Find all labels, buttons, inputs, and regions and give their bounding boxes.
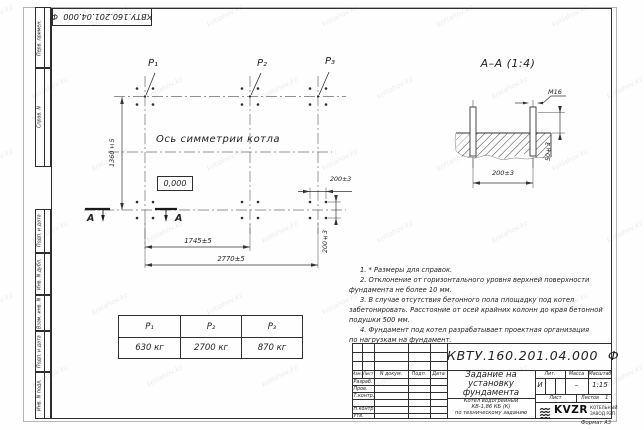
load-table: Р₁ Р₂ Р₃ 630 кг 2700 кг 870 кг	[118, 315, 303, 359]
margin-box-label: Подп. и дата	[36, 332, 44, 371]
tb-line	[535, 402, 612, 403]
load-table-value-p3: 870 кг	[241, 337, 302, 358]
symmetry-axis-label: Ось симметрии котла	[156, 134, 280, 145]
load-table-header-p3: Р₃	[241, 316, 302, 337]
tb-line	[352, 352, 447, 353]
note-line: 3. В случае отсутствия бетонного пола пл…	[349, 295, 605, 305]
dim-50: 50±3	[546, 137, 553, 165]
tb-row-nkontr: Н.контр.	[354, 407, 375, 412]
level-mark-frame: 0,000	[157, 176, 193, 191]
tb-line	[408, 343, 409, 419]
margin-box-label: Инв. N подл.	[36, 373, 44, 418]
tb-line	[352, 413, 447, 414]
tb-col-docnum: N докум.	[374, 372, 408, 377]
tb-col-list: Лист	[362, 372, 374, 377]
load-table-header-p1: Р₁	[119, 316, 180, 337]
notes-block: 1. * Размеры для справок. 2. Отклонение …	[349, 265, 605, 345]
note-line: подушки 500 мм.	[349, 315, 605, 325]
kvzr-logo-icon	[539, 405, 552, 424]
point-label-p2: Р₂	[252, 58, 272, 69]
margin-box-vzam-inv: Взам. инв. N	[35, 295, 51, 331]
dim-200-horizontal: 200±3	[330, 177, 351, 184]
tb-line	[352, 399, 447, 400]
tb-product-line3: по техническому заданию	[447, 411, 535, 417]
dim-200-section: 200±3	[483, 170, 523, 177]
dim-1745: 1745±5	[170, 238, 226, 245]
tb-scale-value: 1:15	[588, 382, 612, 390]
tb-mass-label: Масса	[565, 372, 588, 377]
tb-col-izm: Изм.	[352, 372, 362, 377]
level-mark-value: 0,000	[164, 179, 187, 188]
section-letter-1: А	[87, 214, 94, 224]
note-line: 4. Фундамент под котел разрабатывает про…	[349, 325, 605, 335]
kvzr-logo-sub2: ЗАВОД РЭП	[590, 412, 615, 417]
margin-box-sprav-n: Справ. N	[35, 68, 51, 167]
tb-row-razrab: Разраб.	[354, 380, 373, 385]
kvzr-logo-sub1: КОТЕЛЬНЫЙ	[590, 406, 617, 411]
section-title: А–А (1:4)	[462, 58, 554, 70]
top-designation-text: КВТУ.160.201.04.000 Ф	[51, 12, 152, 22]
margin-box-label: Взам. инв. N	[36, 296, 44, 330]
load-table-header-p2: Р₂	[180, 316, 241, 337]
format-label: Формат А3	[581, 421, 611, 427]
note-line: фундамента не более 10 мм.	[349, 285, 605, 295]
tb-mass-value: –	[565, 382, 588, 390]
tb-line	[555, 378, 556, 394]
tb-scale-label: Масштаб	[588, 372, 612, 377]
tb-line	[576, 394, 577, 402]
tb-sheets-label: Листов	[581, 396, 599, 401]
note-line: забетонировать. Расстояние от осей крайн…	[349, 305, 605, 315]
margin-box-inv-podl: Инв. N подл.	[35, 372, 51, 419]
tb-line	[352, 361, 447, 362]
tb-row-utv: Утв.	[354, 414, 364, 419]
tb-lit-value: И	[535, 382, 545, 390]
margin-box-label: Справ. N	[36, 69, 44, 166]
point-label-p3: Р₃	[320, 56, 340, 67]
top-designation-stamp: КВТУ.160.201.04.000 Ф	[52, 8, 152, 26]
point-label-p1: Р₁	[143, 58, 163, 69]
tb-sheet-label: Лист	[535, 396, 576, 401]
tb-sheets-value: 1	[605, 395, 609, 401]
margin-box-perv-primen: Перв. примен.	[35, 7, 51, 68]
tb-doc-title-line3: фундамента	[447, 389, 535, 398]
tb-line	[430, 343, 431, 419]
tb-col-data: Дата	[430, 372, 447, 377]
dim-200-vertical: 200±3	[323, 226, 330, 256]
margin-box-label: Инв. N дубл.	[36, 254, 44, 294]
margin-box-podp-data-2: Подп. и дата	[35, 331, 51, 372]
dim-2770: 2770±5	[203, 256, 259, 263]
dim-1360: 1360±5	[109, 127, 116, 179]
margin-box-podp-data-1: Подп. и дата	[35, 209, 51, 253]
thread-callout-m16: М16	[548, 89, 562, 96]
drawing-sheet: kotlahov.kzkotlahov.kzkotlahov.kzkotlaho…	[0, 0, 644, 430]
tb-designation: КВТУ.160.201.04.000 Ф	[447, 349, 612, 363]
tb-row-prov: Пров.	[354, 387, 368, 392]
margin-box-label: Подп. и дата	[36, 210, 44, 252]
load-table-value-p2: 2700 кг	[180, 337, 241, 358]
margin-box-inv-dubl: Инв. N дубл.	[35, 253, 51, 295]
kvzr-logo-text: KVZR	[554, 405, 588, 417]
note-line: 1. * Размеры для справок.	[349, 265, 605, 275]
tb-line	[535, 378, 612, 379]
section-letter-2: А	[175, 214, 182, 224]
load-table-value-p1: 630 кг	[119, 337, 180, 358]
tb-row-tkontr: Т.контр.	[354, 394, 375, 399]
tb-line	[545, 378, 546, 394]
note-line: 2. Отклонение от горизонтального уровня …	[349, 275, 605, 285]
margin-box-label: Перв. примен.	[36, 8, 44, 67]
tb-lit-label: Лит.	[535, 372, 565, 377]
tb-col-podp: Подп.	[408, 372, 430, 377]
